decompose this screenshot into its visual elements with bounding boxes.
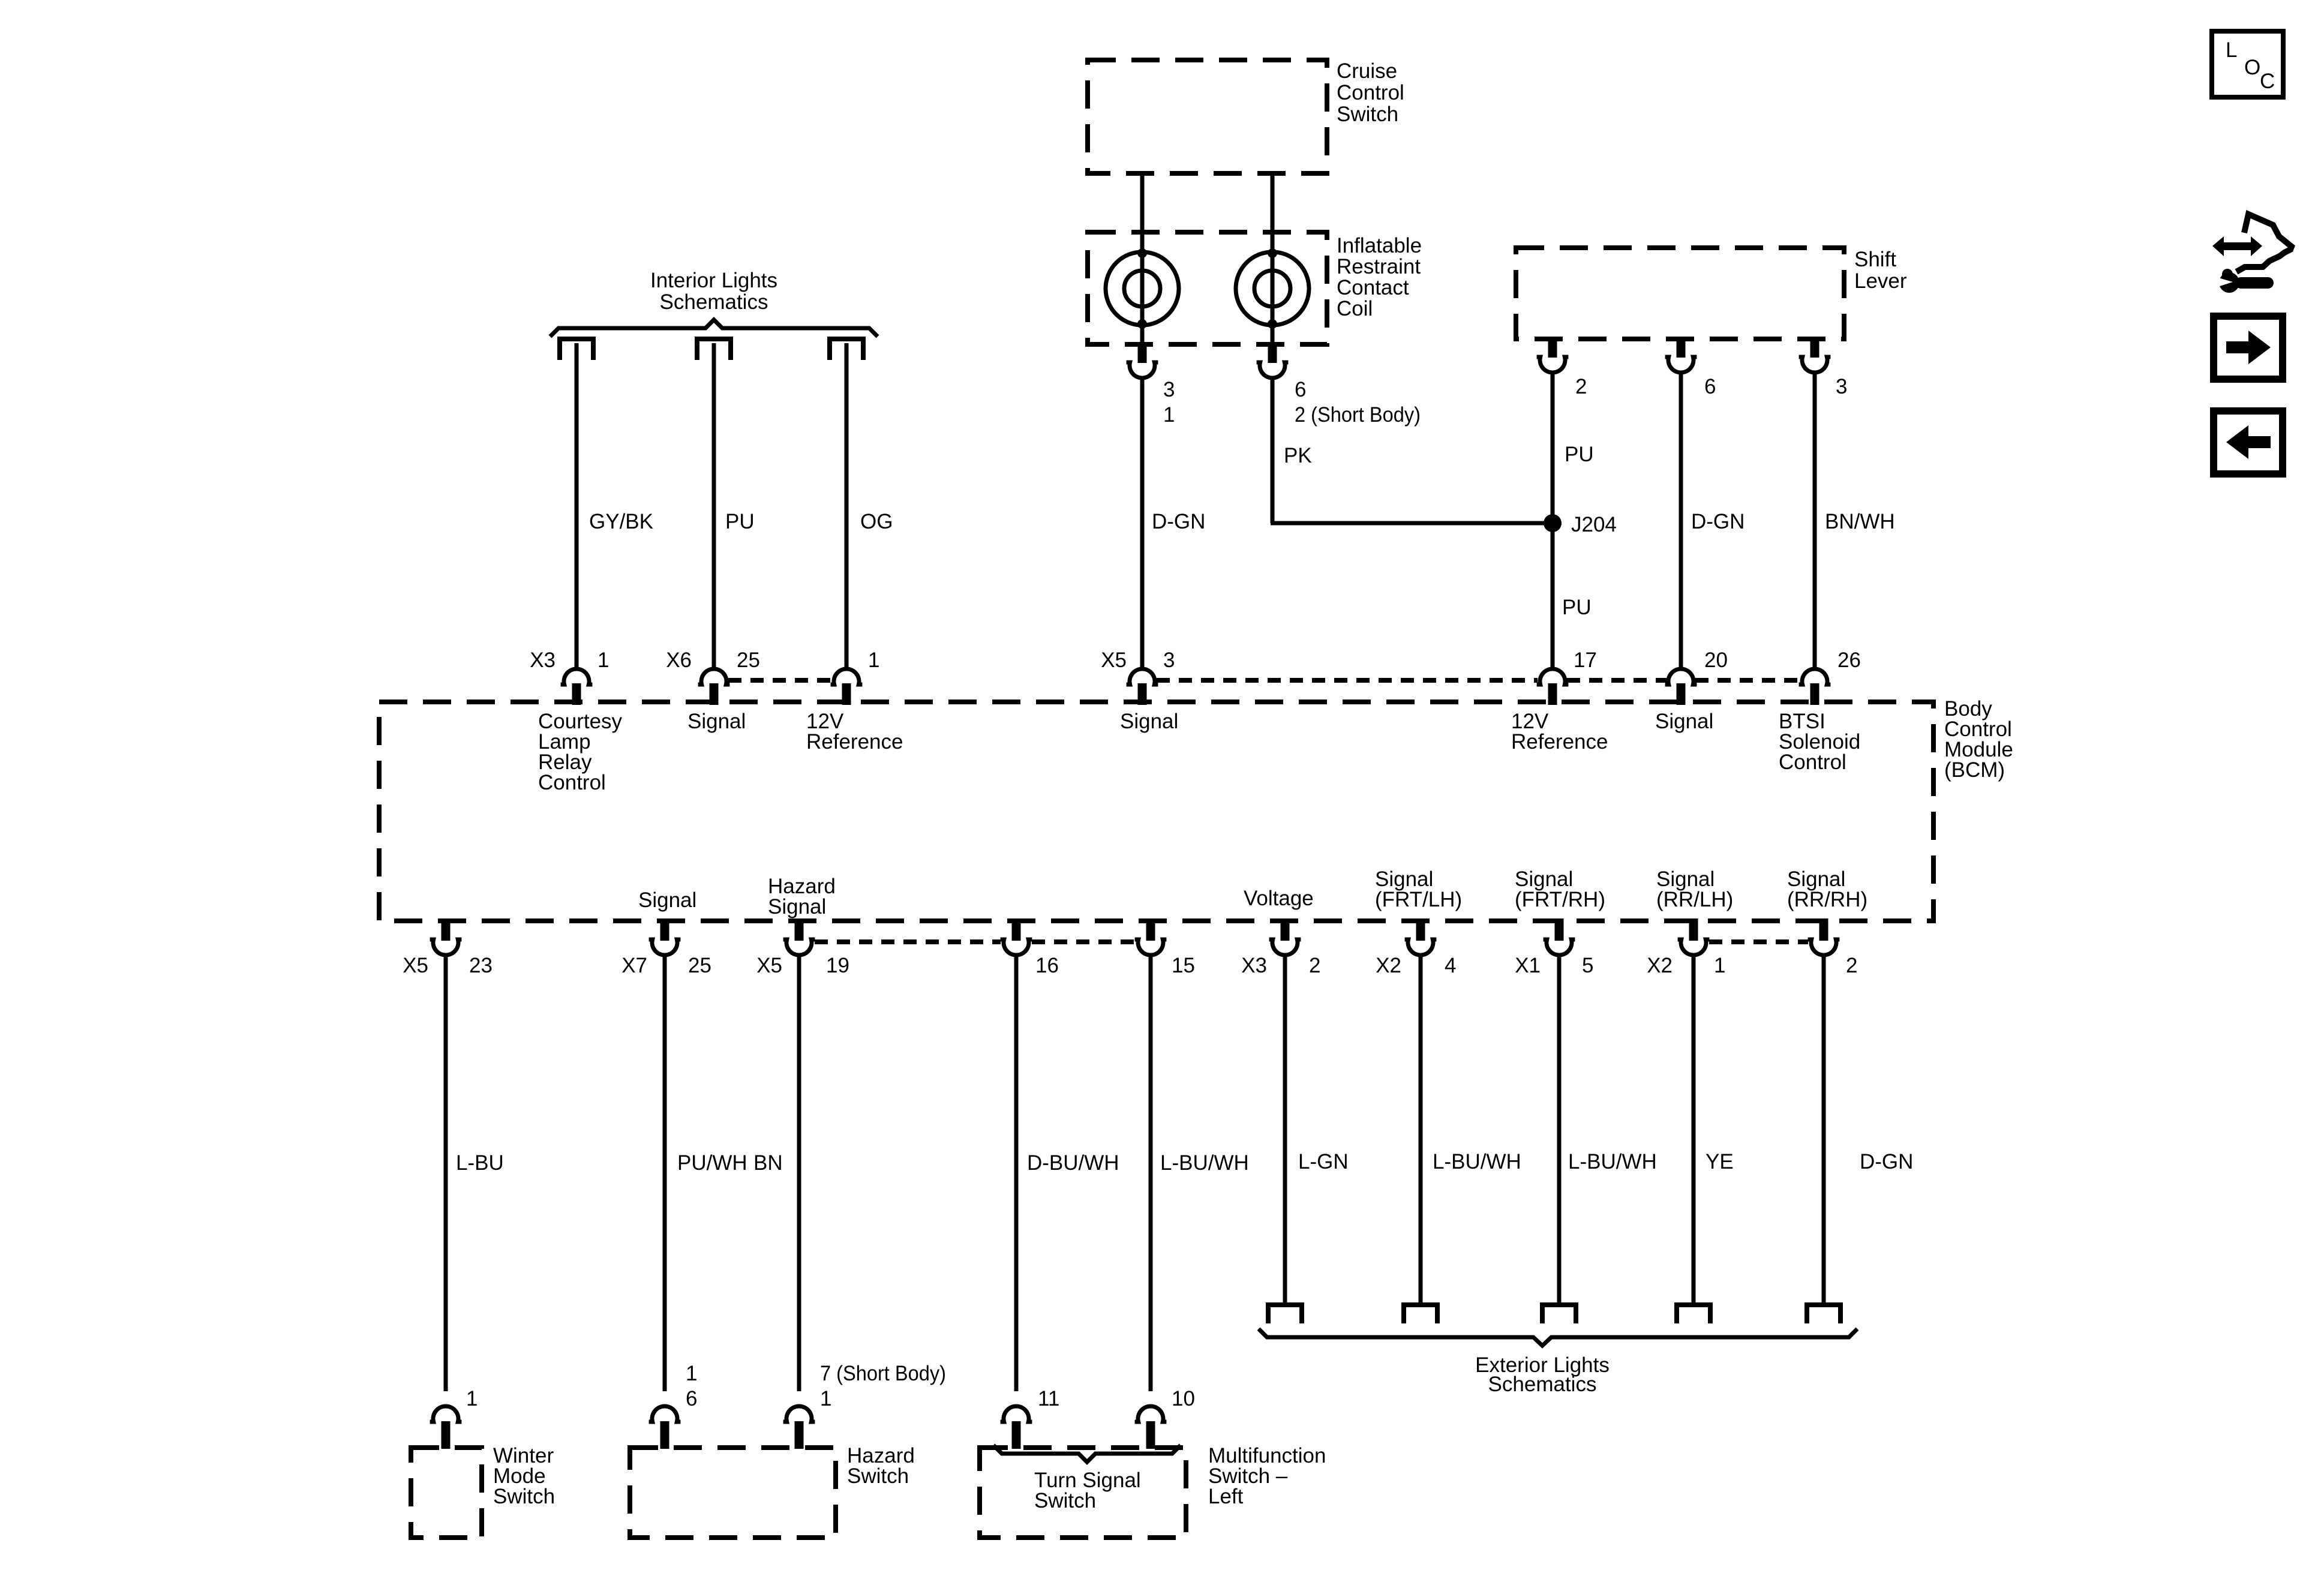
svg-text:Signal: Signal	[687, 710, 746, 733]
svg-text:X3: X3	[530, 649, 556, 672]
svg-text:C: C	[2260, 70, 2275, 93]
svg-text:2: 2	[1309, 954, 1320, 977]
svg-text:1: 1	[820, 1387, 831, 1410]
svg-text:Signal: Signal	[1120, 710, 1178, 733]
svg-text:L-BU/WH: L-BU/WH	[1568, 1150, 1657, 1173]
svg-text:17: 17	[1574, 649, 1597, 672]
svg-text:X5: X5	[1101, 649, 1127, 672]
svg-text:26: 26	[1837, 649, 1861, 672]
svg-text:PU/WH: PU/WH	[677, 1151, 747, 1175]
svg-text:Interior Lights: Interior Lights	[650, 269, 777, 292]
svg-text:16: 16	[1035, 954, 1059, 977]
svg-text:7 (Short Body): 7 (Short Body)	[820, 1362, 946, 1385]
svg-text:X6: X6	[666, 649, 692, 672]
svg-text:5: 5	[1582, 954, 1593, 977]
svg-text:6: 6	[686, 1387, 697, 1410]
svg-text:2: 2	[1575, 375, 1587, 398]
svg-text:Cruise: Cruise	[1337, 59, 1397, 83]
svg-text:1: 1	[466, 1387, 478, 1410]
svg-text:19: 19	[826, 954, 849, 977]
svg-text:1: 1	[1714, 954, 1725, 977]
svg-text:OG: OG	[860, 510, 893, 533]
svg-text:PU: PU	[1562, 596, 1592, 619]
svg-text:Schematics: Schematics	[1488, 1373, 1597, 1396]
svg-text:L-BU/WH: L-BU/WH	[1433, 1150, 1521, 1173]
svg-text:1: 1	[597, 649, 609, 672]
svg-text:2 (Short Body): 2 (Short Body)	[1295, 403, 1421, 427]
svg-text:(FRT/RH): (FRT/RH)	[1515, 888, 1605, 911]
svg-text:3: 3	[1836, 375, 1847, 398]
svg-text:GY/BK: GY/BK	[589, 510, 653, 533]
svg-text:Switch: Switch	[493, 1485, 555, 1508]
svg-text:PU: PU	[725, 510, 755, 533]
svg-text:J204: J204	[1571, 513, 1617, 536]
svg-text:3: 3	[1163, 378, 1175, 401]
svg-text:X1: X1	[1515, 954, 1541, 977]
svg-text:Signal: Signal	[768, 895, 826, 918]
svg-text:Voltage: Voltage	[1244, 887, 1314, 910]
svg-text:X3: X3	[1241, 954, 1267, 977]
svg-text:Control: Control	[538, 771, 606, 794]
svg-text:(RR/RH): (RR/RH)	[1787, 888, 1867, 911]
svg-text:D-BU/WH: D-BU/WH	[1027, 1151, 1119, 1175]
svg-text:Schematics: Schematics	[660, 290, 768, 314]
svg-text:(BCM): (BCM)	[1944, 758, 2005, 782]
svg-text:3: 3	[1163, 649, 1175, 672]
svg-text:Restraint: Restraint	[1337, 255, 1421, 278]
svg-text:25: 25	[737, 649, 760, 672]
svg-text:X2: X2	[1647, 954, 1673, 977]
svg-text:(FRT/LH): (FRT/LH)	[1375, 888, 1462, 911]
svg-text:Signal: Signal	[1655, 710, 1713, 733]
svg-text:23: 23	[469, 954, 493, 977]
svg-text:Reference: Reference	[806, 730, 903, 754]
svg-text:1: 1	[686, 1362, 697, 1385]
svg-text:1: 1	[868, 649, 879, 672]
svg-text:Switch: Switch	[847, 1464, 909, 1488]
svg-text:Lever: Lever	[1854, 269, 1907, 293]
svg-text:BN/WH: BN/WH	[1825, 510, 1895, 533]
svg-text:(RR/LH): (RR/LH)	[1656, 888, 1733, 911]
svg-text:Switch: Switch	[1337, 103, 1398, 126]
svg-text:X5: X5	[403, 954, 428, 977]
svg-text:D-GN: D-GN	[1152, 510, 1205, 533]
svg-text:Shift: Shift	[1854, 248, 1896, 271]
svg-text:Left: Left	[1208, 1485, 1244, 1508]
svg-text:Reference: Reference	[1511, 730, 1608, 754]
svg-text:Contact: Contact	[1337, 276, 1409, 299]
svg-text:X7: X7	[621, 954, 647, 977]
svg-text:O: O	[2244, 56, 2260, 79]
svg-text:2: 2	[1846, 954, 1857, 977]
svg-text:20: 20	[1704, 649, 1728, 672]
svg-text:6: 6	[1704, 375, 1716, 398]
svg-text:PK: PK	[1284, 444, 1312, 467]
svg-text:11: 11	[1038, 1387, 1059, 1410]
svg-text:L: L	[2226, 38, 2237, 62]
svg-text:4: 4	[1445, 954, 1456, 977]
svg-text:Control: Control	[1779, 751, 1846, 774]
svg-text:D-GN: D-GN	[1860, 1150, 1913, 1173]
svg-text:6: 6	[1295, 378, 1306, 401]
svg-text:Control: Control	[1337, 81, 1404, 104]
svg-text:L-BU: L-BU	[456, 1151, 504, 1175]
svg-text:Signal: Signal	[638, 888, 696, 912]
svg-text:Coil: Coil	[1337, 297, 1373, 320]
svg-text:YE: YE	[1706, 1150, 1734, 1173]
svg-text:X2: X2	[1376, 954, 1401, 977]
svg-text:10: 10	[1172, 1387, 1195, 1410]
svg-text:PU: PU	[1565, 443, 1594, 466]
svg-text:X5: X5	[756, 954, 782, 977]
svg-text:15: 15	[1172, 954, 1195, 977]
svg-text:Switch: Switch	[1034, 1489, 1096, 1512]
svg-text:L-GN: L-GN	[1298, 1150, 1349, 1173]
svg-text:25: 25	[688, 954, 711, 977]
svg-text:Inflatable: Inflatable	[1337, 234, 1422, 257]
svg-text:1: 1	[1163, 403, 1175, 427]
svg-text:BN: BN	[753, 1151, 783, 1175]
svg-text:L-BU/WH: L-BU/WH	[1160, 1151, 1249, 1175]
svg-text:D-GN: D-GN	[1691, 510, 1744, 533]
